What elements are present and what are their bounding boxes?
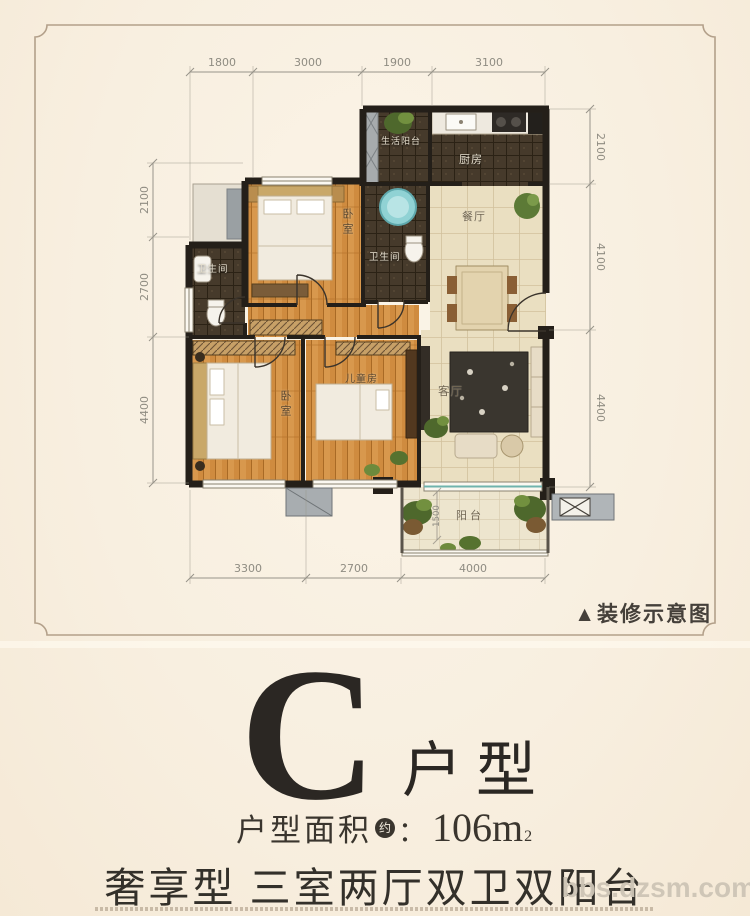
area-label: 户型面积 [236, 805, 372, 850]
floor-plan-poster: 1800 3000 1900 3100 2100 2700 4400 2100 … [0, 0, 750, 916]
dim-top-2: 3000 [273, 56, 343, 70]
dim-left-1: 2100 [138, 165, 152, 235]
unit-letter: C [240, 640, 377, 830]
room-label-kitchen: 厨房 [459, 151, 483, 167]
area-approx-badge: 约 [375, 818, 395, 838]
room-label-bath-main: 卫生间 [197, 261, 229, 275]
dim-right-2: 4100 [593, 222, 607, 292]
site-watermark: bbs.dzsm.com [562, 872, 750, 904]
dim-top-1: 1800 [187, 56, 257, 70]
unit-type-label: 户型 [402, 722, 550, 809]
fine-print-line [95, 907, 655, 911]
floor-plan-drawing [0, 0, 750, 645]
dim-left-3: 4400 [138, 375, 152, 445]
plan-caption: ▲装修示意图 [574, 598, 712, 628]
room-label-service-balcony: 生活阳台 [381, 134, 421, 147]
area-colon: ： [398, 810, 426, 850]
dim-bottom-3: 4000 [438, 562, 508, 576]
area-exponent: 2 [524, 828, 532, 846]
room-label-kids-room: 儿童房 [345, 370, 378, 385]
dim-top-4: 3100 [454, 56, 524, 70]
room-label-bedroom-master: 卧室 [339, 208, 355, 256]
room-label-dining: 餐厅 [462, 208, 486, 224]
unit-area-line: 户型面积 约 ： 106m 2 [236, 804, 532, 851]
room-label-bath-second: 卫生间 [369, 249, 401, 263]
dim-bottom-2: 2700 [319, 562, 389, 576]
dim-right-3: 4400 [593, 373, 607, 443]
room-label-living: 客厅 [438, 383, 463, 399]
dim-top-3: 1900 [362, 56, 432, 70]
room-label-bedroom-second: 卧室 [277, 390, 293, 438]
room-label-balcony: 阳台 [456, 507, 484, 523]
dim-bottom-1: 3300 [213, 562, 283, 576]
dim-right-1: 2100 [593, 112, 607, 182]
dim-left-2: 2700 [138, 252, 152, 322]
dim-balcony-depth: 1500 [430, 491, 444, 541]
area-value: 106m [432, 804, 523, 851]
